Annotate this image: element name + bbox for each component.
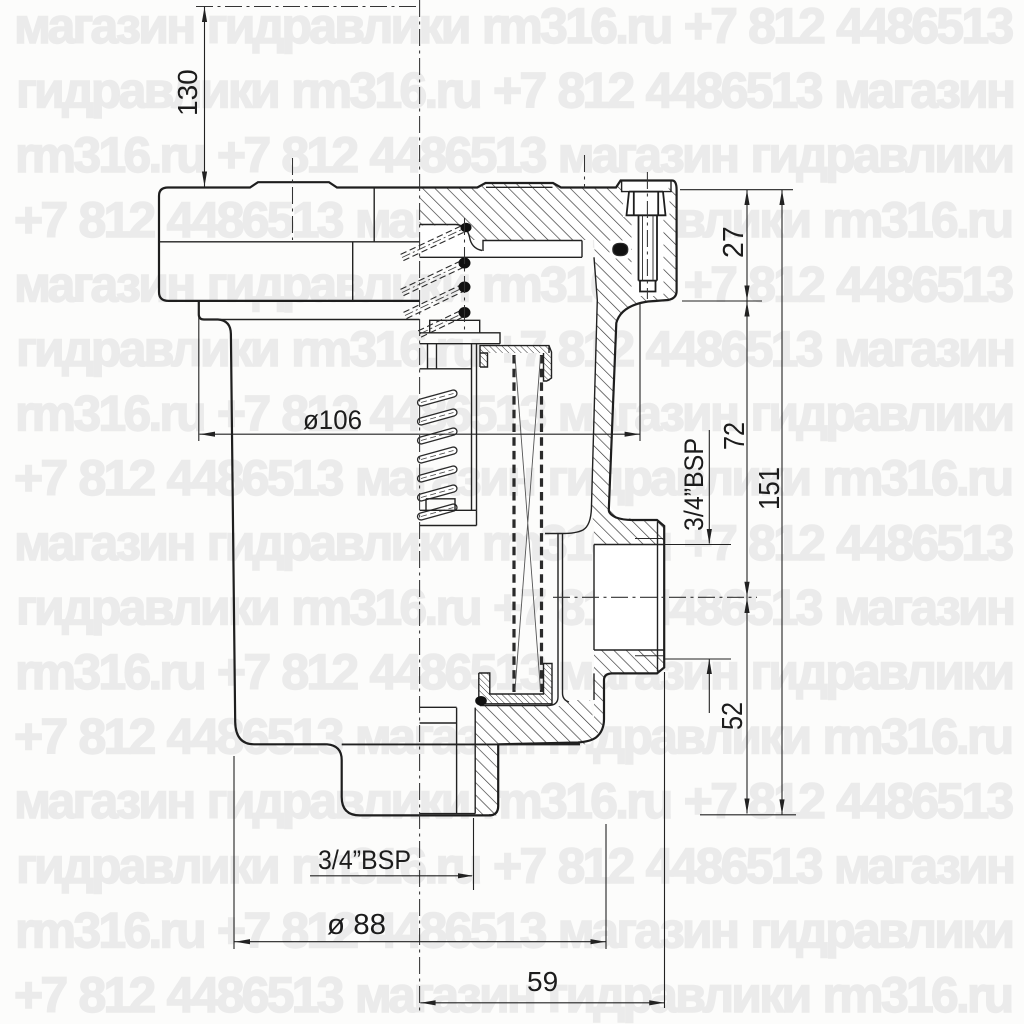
- svg-text:rm316.ru +7 812 4486513 магази: rm316.ru +7 812 4486513 магазин гидравли…: [15, 902, 1012, 958]
- svg-text:151: 151: [754, 467, 786, 510]
- svg-text:27: 27: [718, 226, 750, 258]
- svg-text:магазин гидравлики rm316.ru +7: магазин гидравлики rm316.ru +7 812 44865…: [14, 0, 1012, 54]
- svg-text:гидравлики rm316.ru +7 812 448: гидравлики rm316.ru +7 812 4486513 магаз…: [16, 63, 1013, 119]
- svg-text:52: 52: [717, 702, 749, 730]
- svg-text:3/4”BSP: 3/4”BSP: [318, 845, 411, 875]
- svg-text:магазин гидравлики rm316.ru +7: магазин гидравлики rm316.ru +7 812 44865…: [14, 773, 1012, 829]
- svg-text:130: 130: [172, 69, 203, 116]
- svg-text:3/4”BSP: 3/4”BSP: [679, 438, 709, 531]
- svg-text:rm316.ru +7 812 4486513 магази: rm316.ru +7 812 4486513 магазин гидравли…: [15, 127, 1012, 183]
- svg-text:72: 72: [719, 422, 751, 450]
- svg-text:59: 59: [527, 966, 558, 997]
- svg-text:магазин гидравлики rm316.ru +7: магазин гидравлики rm316.ru +7 812 44865…: [14, 256, 1012, 312]
- svg-text:ø 88: ø 88: [327, 909, 386, 941]
- svg-text:гидравлики rm316.ru +7 812 448: гидравлики rm316.ru +7 812 4486513 магаз…: [16, 838, 1013, 894]
- svg-text:+7 812 4486513 магазин гидравл: +7 812 4486513 магазин гидравлики rm316.…: [14, 967, 1012, 1023]
- svg-text:ø106: ø106: [303, 405, 362, 435]
